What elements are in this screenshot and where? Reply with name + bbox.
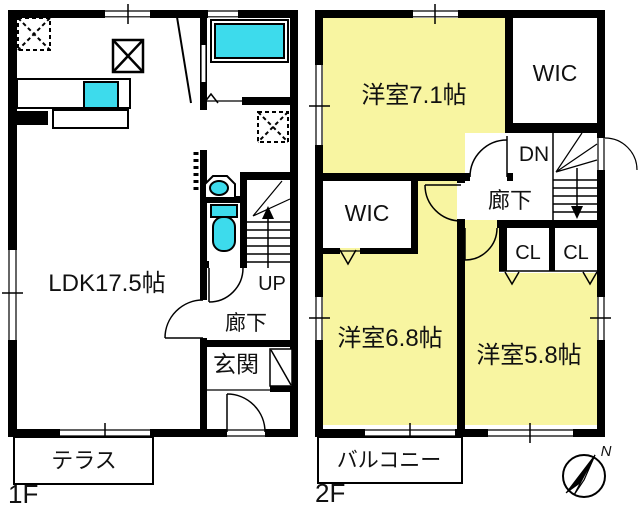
toilet-icon: [211, 205, 237, 251]
label-bedroom-5-8: 洋室5.8帖: [476, 342, 581, 369]
up-arrow-head: [262, 206, 274, 219]
label-stairs-dn: DN: [519, 143, 549, 166]
label-ldk: LDK17.5帖: [48, 270, 165, 297]
shoe-cabinet: [270, 349, 292, 386]
label-stairs-up: UP: [258, 273, 286, 295]
label-entrance: 玄関: [213, 351, 259, 377]
window: [208, 10, 238, 18]
label-wic-left: WIC: [345, 200, 390, 226]
label-cl-right: CL: [563, 242, 589, 264]
label-balcony: バルコニー: [337, 449, 442, 472]
label-bedroom-7-1: 洋室7.1帖: [361, 82, 466, 109]
window: [2, 250, 23, 340]
door-arc: [605, 138, 637, 170]
exterior-door-2f: [597, 138, 637, 170]
label-floor-1f: 1F: [8, 479, 38, 509]
counter-lower: [53, 110, 128, 128]
label-cl-left: CL: [515, 242, 541, 264]
washbasin-icon: [205, 176, 235, 198]
label-floor-2f: 2F: [315, 478, 345, 508]
kitchen-sink: [84, 82, 118, 108]
label-hallway-2f: 廊下: [488, 188, 532, 213]
refrigerator-space-icon: [18, 18, 50, 50]
bathtub: [211, 20, 288, 62]
window: [488, 423, 573, 443]
stairs-1f: [247, 181, 290, 268]
compass-icon: N: [563, 443, 612, 497]
compass-north-label: N: [601, 443, 612, 460]
bath-folding-door: [203, 94, 242, 103]
label-hallway-1f: 廊下: [225, 312, 267, 335]
label-wic-top: WIC: [533, 60, 578, 86]
door-ldk: [165, 300, 203, 338]
door-toilet: [209, 268, 243, 302]
floor-plan-canvas: N LDK17.5帖 廊下 玄関 UP テラス 1F 洋室7.1帖 WIC DN…: [0, 0, 640, 509]
floor-plan: N LDK17.5帖 廊下 玄関 UP テラス 1F 洋室7.1帖 WIC DN…: [0, 0, 640, 509]
window: [105, 4, 150, 24]
label-bedroom-6-8: 洋室6.8帖: [337, 325, 442, 352]
column-box-icon: [113, 40, 143, 72]
washing-machine-space-icon: [258, 112, 288, 142]
label-terrace: テラス: [51, 448, 117, 473]
